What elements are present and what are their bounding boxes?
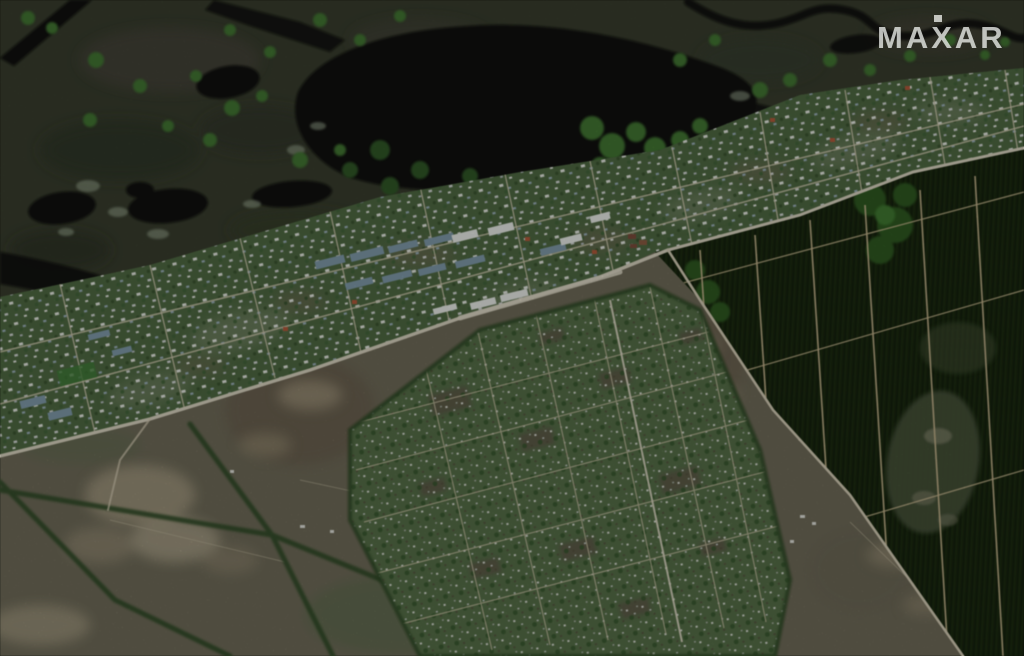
maxar-logo-dot (934, 15, 942, 22)
maxar-watermark: MAXAR (877, 15, 1006, 55)
maxar-watermark-text: MAXAR (877, 20, 1006, 55)
satellite-scene (0, 0, 1024, 656)
satellite-image: MAXAR (0, 0, 1024, 656)
satellite-canvas: MAXAR (0, 0, 1024, 656)
tone-overlay (0, 0, 1024, 656)
